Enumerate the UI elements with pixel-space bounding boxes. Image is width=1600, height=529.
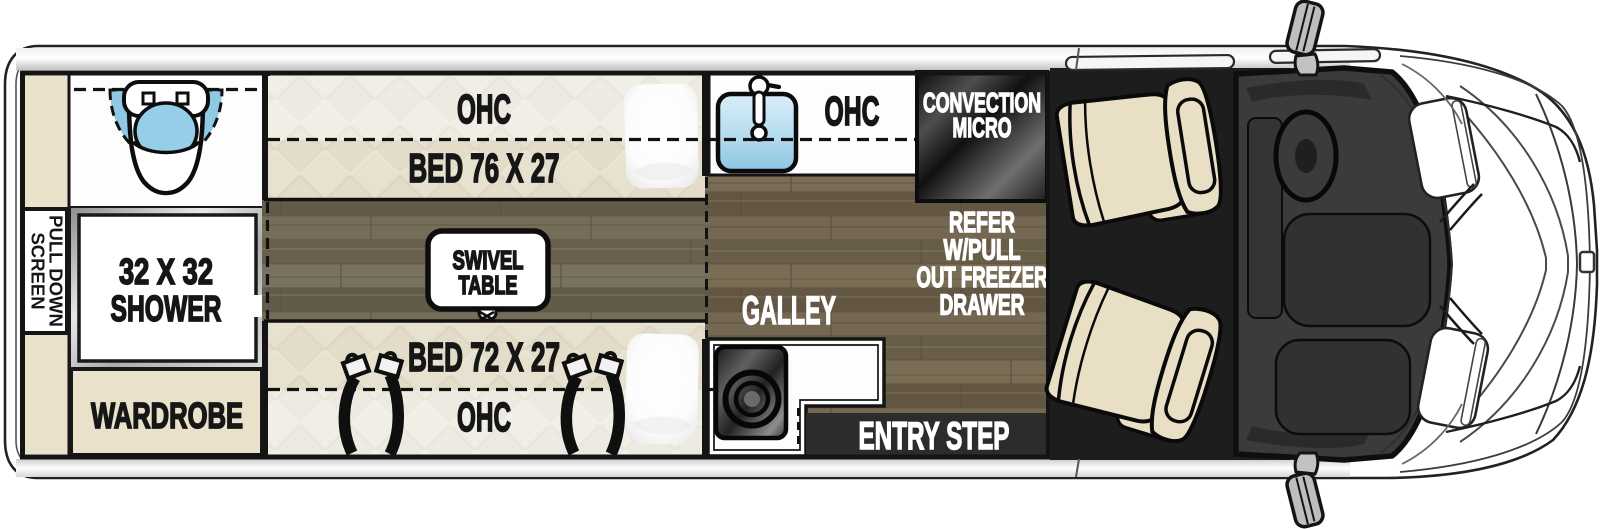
svg-text:OHC: OHC: [825, 88, 880, 134]
svg-text:OHC: OHC: [457, 394, 511, 440]
svg-text:OHC: OHC: [457, 86, 511, 132]
svg-text:WARDROBE: WARDROBE: [91, 395, 243, 436]
svg-text:MICRO: MICRO: [953, 112, 1012, 143]
svg-text:DRAWER: DRAWER: [940, 290, 1025, 322]
svg-text:GALLEY: GALLEY: [742, 289, 836, 333]
svg-text:ENTRY STEP: ENTRY STEP: [859, 415, 1010, 458]
svg-text:TABLE: TABLE: [459, 270, 518, 300]
svg-text:BED 72 X 27: BED 72 X 27: [408, 334, 560, 380]
svg-text:SHOWER: SHOWER: [111, 288, 222, 329]
svg-text:32 X 32: 32 X 32: [119, 251, 213, 292]
svg-text:BED 76 X 27: BED 76 X 27: [409, 145, 560, 191]
